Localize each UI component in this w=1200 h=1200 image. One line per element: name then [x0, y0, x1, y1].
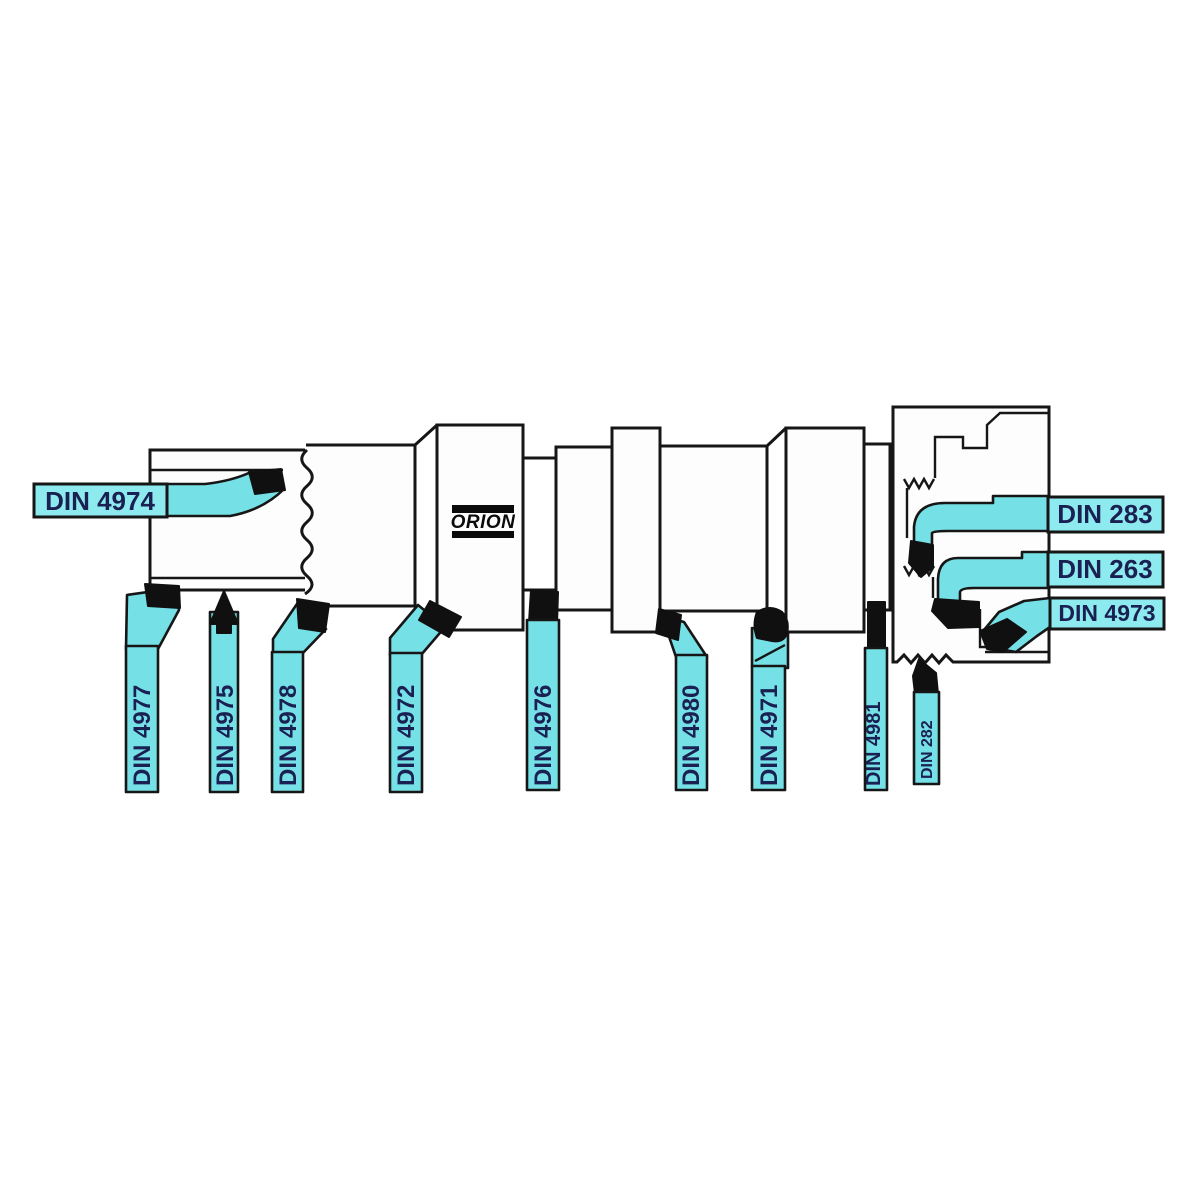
din-4977-tip — [145, 584, 180, 608]
shaft-section-7 — [864, 444, 890, 610]
chamfer-line-1 — [415, 425, 437, 445]
din-4975-label: DIN 4975 — [212, 685, 239, 786]
orion-logo-bottom-bar — [452, 531, 514, 538]
din-4974-tip — [249, 469, 285, 494]
din-282-tip — [913, 659, 938, 694]
din-283-label: DIN 283 — [1057, 499, 1152, 529]
tool-din-4971: DIN 4971 — [752, 608, 788, 790]
neck-1-lines — [523, 458, 556, 590]
tool-din-4977: DIN 4977 — [126, 584, 180, 792]
din-4971-label: DIN 4971 — [756, 685, 783, 786]
orion-logo-text: ORION — [451, 512, 517, 533]
din-263-label: DIN 263 — [1057, 554, 1152, 584]
tool-din-4972: DIN 4972 — [390, 601, 461, 792]
diagram-canvas: ORION DIN 4974 DIN 4977 DIN 4975 DIN 497… — [0, 0, 1200, 1200]
tool-din-4981: DIN 4981 — [863, 602, 887, 790]
din-4980-label: DIN 4980 — [678, 685, 705, 786]
din-4976-label: DIN 4976 — [530, 685, 557, 786]
tool-din-4976: DIN 4976 — [527, 590, 559, 790]
din-4978-tip — [297, 599, 329, 632]
turning-tools-diagram: ORION DIN 4974 DIN 4977 DIN 4975 DIN 497… — [0, 0, 1200, 1200]
din-4971-tip — [755, 608, 788, 641]
shaft-section-6 — [786, 428, 864, 632]
din-4977-label: DIN 4977 — [129, 685, 156, 786]
din-4973-label: DIN 4973 — [1058, 600, 1155, 626]
din-282-label: DIN 282 — [919, 720, 936, 779]
din-4972-label: DIN 4972 — [393, 685, 420, 786]
din-4974-label: DIN 4974 — [45, 486, 155, 516]
orion-logo: ORION — [451, 505, 517, 538]
din-4978-label: DIN 4978 — [275, 685, 302, 786]
shaft-section-4 — [612, 428, 660, 632]
tool-din-282: DIN 282 — [913, 659, 939, 784]
din-4981-label: DIN 4981 — [863, 702, 885, 787]
tool-din-4980: DIN 4980 — [656, 609, 707, 790]
shaft-section-1 — [306, 445, 415, 606]
din-4980-tip — [656, 609, 681, 640]
tool-din-4978: DIN 4978 — [272, 599, 329, 792]
chamfer-line-3 — [767, 428, 786, 446]
din-4981-tip — [868, 602, 885, 650]
shaft-section-5 — [660, 446, 767, 611]
tool-din-4975: DIN 4975 — [210, 591, 239, 792]
shaft-section-3 — [556, 447, 612, 610]
workpiece-shaft — [306, 425, 890, 632]
